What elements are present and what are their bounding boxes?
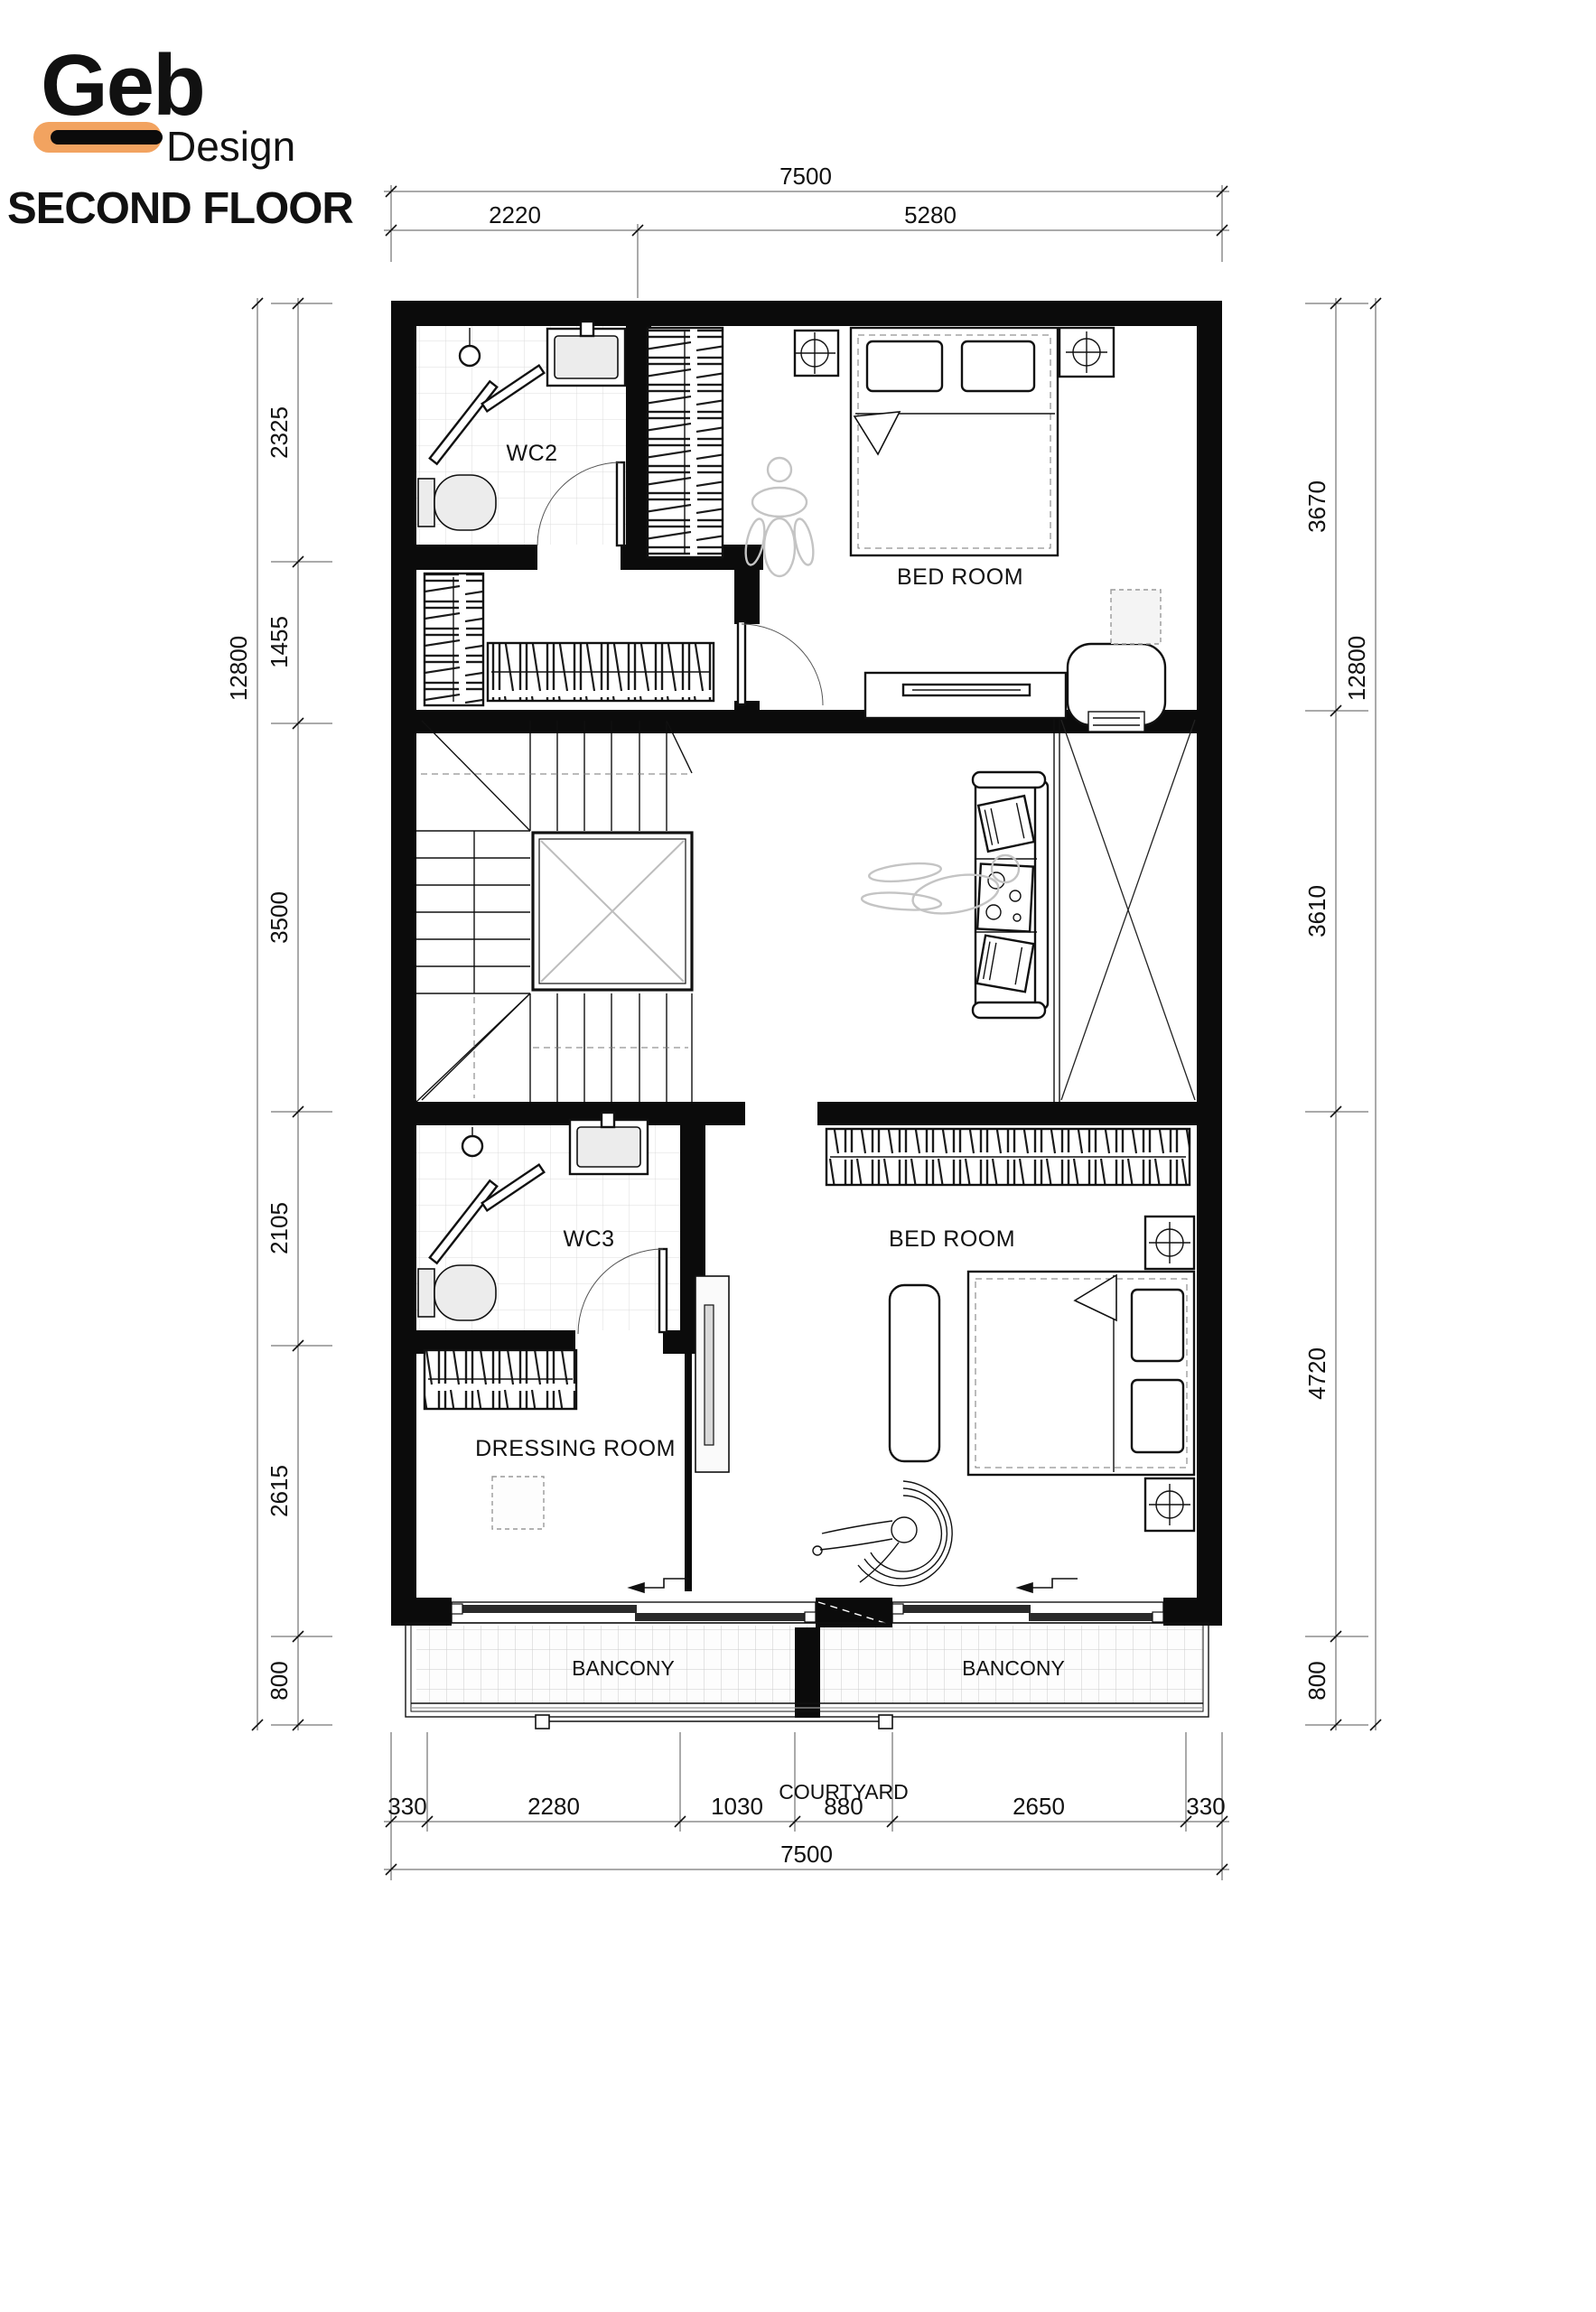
toilet-icon (418, 479, 434, 527)
dim-left-seg-3: 2105 (266, 1202, 293, 1254)
shower-head-icon (462, 1136, 482, 1156)
dim-left-total: 12800 (225, 636, 252, 701)
door-leaf (738, 621, 745, 704)
pillow (1132, 1290, 1183, 1361)
dim-left-seg-4: 2615 (266, 1465, 293, 1517)
sofa (973, 772, 1048, 1018)
monitor (1111, 590, 1161, 644)
shower-head-icon (460, 346, 480, 366)
bedroom-bottom-label: BED ROOM (889, 1226, 1015, 1252)
wc3-label: WC3 (563, 1226, 614, 1252)
dim-bottom-total: 7500 (780, 1841, 833, 1868)
pillow (867, 341, 942, 391)
pillow (1132, 1380, 1183, 1452)
dim-bottom-seg-0: 330 (387, 1793, 426, 1820)
floorplan-page: { "brand": { "logo_top": "Geb", "logo_su… (0, 0, 1596, 2312)
sofa-pillow (977, 936, 1034, 993)
dim-bottom-seg-2: 1030 (711, 1793, 763, 1820)
dim-bottom-seg-4: 2650 (1013, 1793, 1065, 1820)
sofa-pillow (978, 796, 1034, 852)
dimension-bottom: COURTYARD 330 2280 1030 880 2650 330 750… (384, 1732, 1229, 1880)
dim-right-seg-0: 3670 (1303, 480, 1330, 533)
dimension-right: 3670 3610 4720 800 12800 (1303, 298, 1381, 1730)
sofa-throw (977, 864, 1033, 932)
dim-right-seg-1: 3610 (1303, 885, 1330, 937)
balcony-right-label: BANCONY (962, 1656, 1065, 1680)
door-leaf (617, 462, 624, 545)
dim-left-seg-1: 1455 (266, 616, 293, 668)
door-leaf (659, 1249, 667, 1332)
dim-bottom-seg-5: 330 (1186, 1793, 1225, 1820)
logo-black-bar-icon (51, 130, 163, 144)
floorplan-drawing: Geb Design SECOND FLOOR 7500 2220 5280 (0, 0, 1596, 2312)
dim-bottom-seg-1: 2280 (527, 1793, 580, 1820)
dim-right-total: 12800 (1343, 636, 1370, 701)
dim-top-total: 7500 (779, 163, 832, 190)
dimension-top: 7500 2220 5280 (384, 163, 1229, 298)
window-left (452, 1602, 816, 1623)
dim-left-seg-2: 3500 (266, 891, 293, 944)
dim-bottom-seg-3: 880 (824, 1793, 863, 1820)
balcony-left-label: BANCONY (572, 1656, 675, 1680)
dim-right-seg-3: 800 (1303, 1661, 1330, 1700)
dimension-left: 2325 1455 3500 2105 2615 800 12800 (225, 298, 332, 1730)
dim-top-seg-1: 5280 (904, 201, 957, 228)
stool (492, 1477, 544, 1529)
page-title: SECOND FLOOR (7, 184, 353, 233)
brand-logo: Geb Design SECOND FLOOR (7, 37, 353, 233)
toilet-icon (418, 1269, 434, 1317)
dressing-label: DRESSING ROOM (475, 1436, 676, 1461)
logo-text-design: Design (166, 123, 295, 170)
dim-right-seg-2: 4720 (1303, 1347, 1330, 1400)
bedroom-top-label: BED ROOM (897, 564, 1023, 590)
window-right (892, 1602, 1163, 1623)
ac-vent-icon (1088, 712, 1144, 732)
dim-top-seg-0: 2220 (489, 201, 541, 228)
pillow (962, 341, 1034, 391)
dim-left-seg-5: 800 (266, 1661, 293, 1700)
dim-left-seg-0: 2325 (266, 406, 293, 459)
wc2-label: WC2 (506, 441, 557, 466)
bench (890, 1285, 939, 1461)
logo-text-geb: Geb (41, 37, 204, 134)
